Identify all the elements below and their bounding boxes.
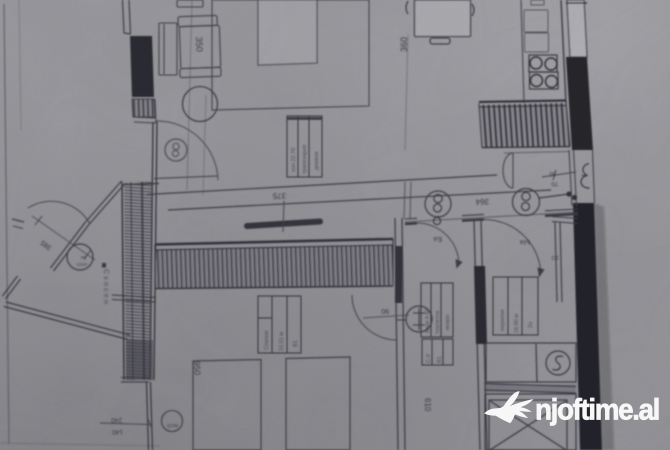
svg-text:njoftime.al: njoftime.al bbox=[535, 394, 659, 427]
